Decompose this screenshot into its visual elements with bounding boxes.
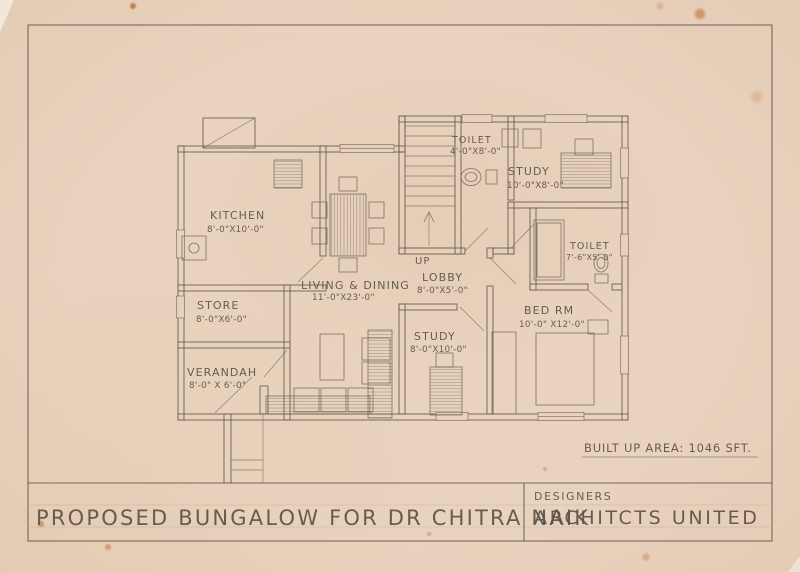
toilet-right-label: TOILET xyxy=(569,241,610,252)
study-top-furniture xyxy=(502,129,611,188)
project-title: PROPOSED BUNGALOW FOR DR CHITRA NAIK xyxy=(36,506,590,530)
study-top-dims: 10'-0"X8'-0" xyxy=(507,181,564,191)
study-bottom-furniture xyxy=(430,353,462,415)
lobby-dims: 8'-0"X5'-0" xyxy=(417,286,468,296)
floor-plan-svg: KITCHEN 8'-0"X10'-0" STORE 8'-0"X6'-0" V… xyxy=(0,0,800,572)
area-note: BUILT UP AREA: 1046 SFT. xyxy=(582,441,758,457)
living-label: LIVING & DINING xyxy=(301,279,410,292)
firm-name-line1: DESIGNERS xyxy=(534,490,612,503)
room-labels: KITCHEN 8'-0"X10'-0" STORE 8'-0"X6'-0" V… xyxy=(187,135,613,391)
lobby-label: LOBBY xyxy=(422,271,463,284)
study-bottom-dims: 8'-0"X10'-0" xyxy=(410,345,467,355)
study-top-label: STUDY xyxy=(508,165,550,178)
stair-up-label: UP xyxy=(415,256,430,267)
toilet-right-dims: 7'-6"X5'-0" xyxy=(566,253,613,262)
drawing-sheet: KITCHEN 8'-0"X10'-0" STORE 8'-0"X6'-0" V… xyxy=(0,0,800,572)
toilet-top-dims: 4'-0"X8'-0" xyxy=(450,147,501,157)
sofa-set xyxy=(266,330,392,418)
study-bottom-label: STUDY xyxy=(414,330,456,343)
toilet-top-label: TOILET xyxy=(451,135,492,146)
kitchen-dims: 8'-0"X10'-0" xyxy=(207,225,264,235)
dining-table xyxy=(312,177,384,272)
bedroom-dims: 10'-0" X12'-0" xyxy=(519,320,585,330)
toilet-top-fixtures xyxy=(461,169,497,186)
store-dims: 8'-0"X6'-0" xyxy=(196,315,247,325)
bedroom-furniture xyxy=(492,320,608,414)
store-label: STORE xyxy=(197,299,239,312)
stair-up-arrow xyxy=(424,212,434,246)
built-up-area-text: BUILT UP AREA: 1046 SFT. xyxy=(584,441,752,455)
bedroom-label: BED RM xyxy=(524,304,574,317)
living-dims: 11'-0"X23'-0" xyxy=(312,293,375,303)
entrance-steps xyxy=(224,414,263,483)
verandah-label: VERANDAH xyxy=(187,366,257,379)
staircase xyxy=(405,126,455,246)
kitchen-label: KITCHEN xyxy=(210,209,265,222)
firm-name-line2: ARCHITCTS UNITED xyxy=(534,507,759,529)
verandah-dims: 8'-0" X 6'-0" xyxy=(189,381,246,391)
title-block: PROPOSED BUNGALOW FOR DR CHITRA NAIK DES… xyxy=(28,483,772,541)
door-swings xyxy=(215,224,612,413)
